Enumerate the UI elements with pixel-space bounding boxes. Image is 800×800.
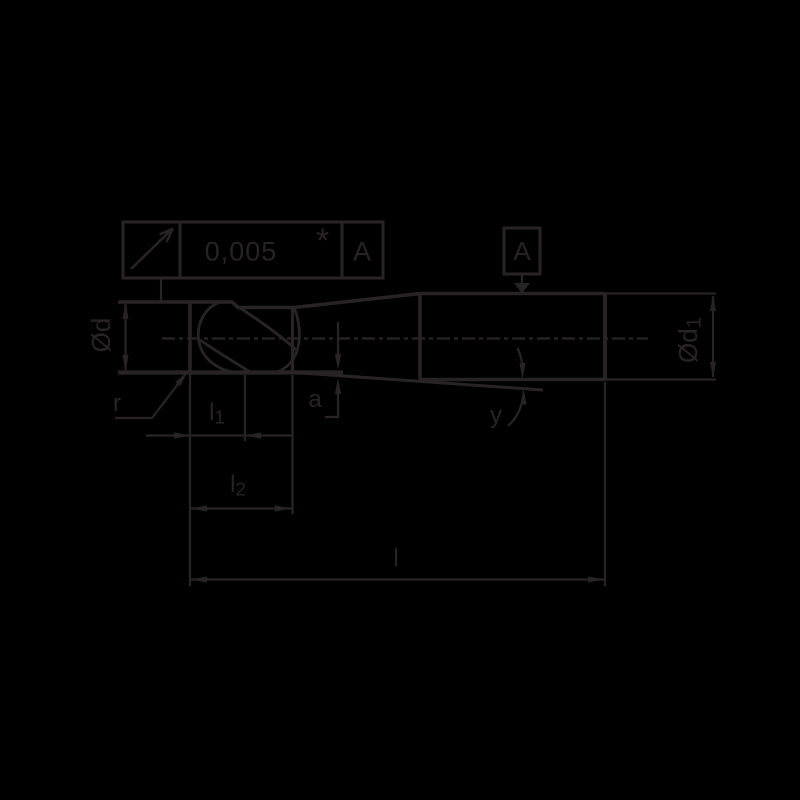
overall-length-label: l [393,547,398,571]
flute-length-label: l1 [209,401,225,427]
tolerance-datum-letter: A [353,239,371,266]
datum-letter: A [513,238,530,264]
flute-length-sub: 1 [214,406,224,427]
shank-diameter-sub: 1 [684,317,706,328]
corner-radius-label: r [113,392,121,416]
footnote-asterisk: * [316,224,329,258]
drawing-page: 0,005 * A A Ød Ød1 r l1 a y l2 l [0,0,800,800]
head-diameter-label: Ød [88,318,114,353]
shank-diameter-label: Ød1 [675,317,705,363]
taper-angle-label: y [490,404,502,428]
cut-length-sub: 2 [235,478,245,499]
axial-offset-label: a [308,388,321,412]
cut-length-label: l2 [230,473,246,499]
runout-symbol-icon [131,229,173,270]
tolerance-value: 0,005 [205,239,278,266]
shank-diameter-text: Ød [673,328,703,363]
